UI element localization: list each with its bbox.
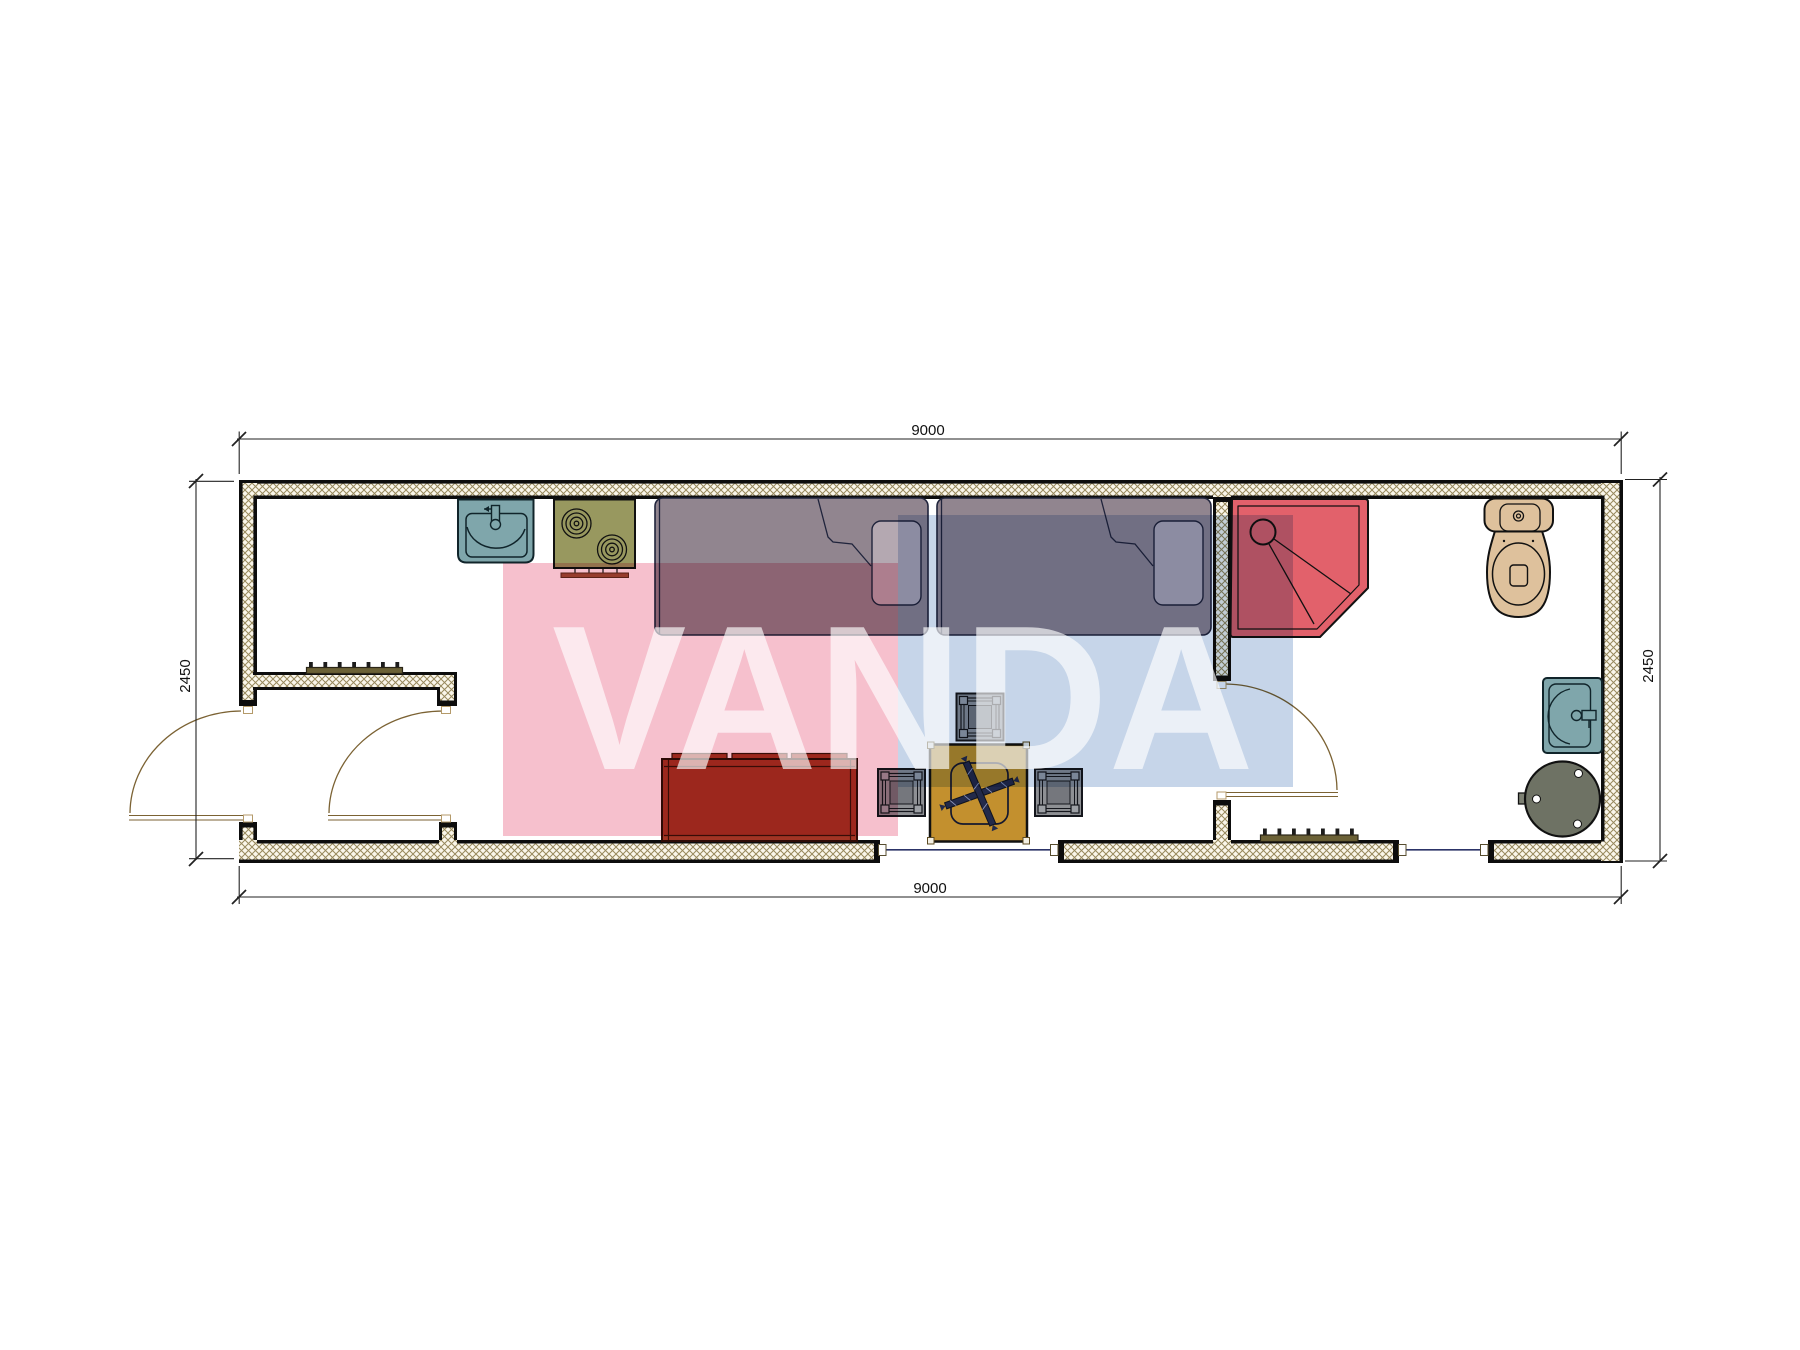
svg-text:9000: 9000 xyxy=(911,422,944,439)
svg-text:9000: 9000 xyxy=(913,880,946,897)
svg-text:VANDA: VANDA xyxy=(552,583,1254,813)
svg-text:2450: 2450 xyxy=(177,659,194,692)
svg-text:2450: 2450 xyxy=(1640,649,1657,682)
